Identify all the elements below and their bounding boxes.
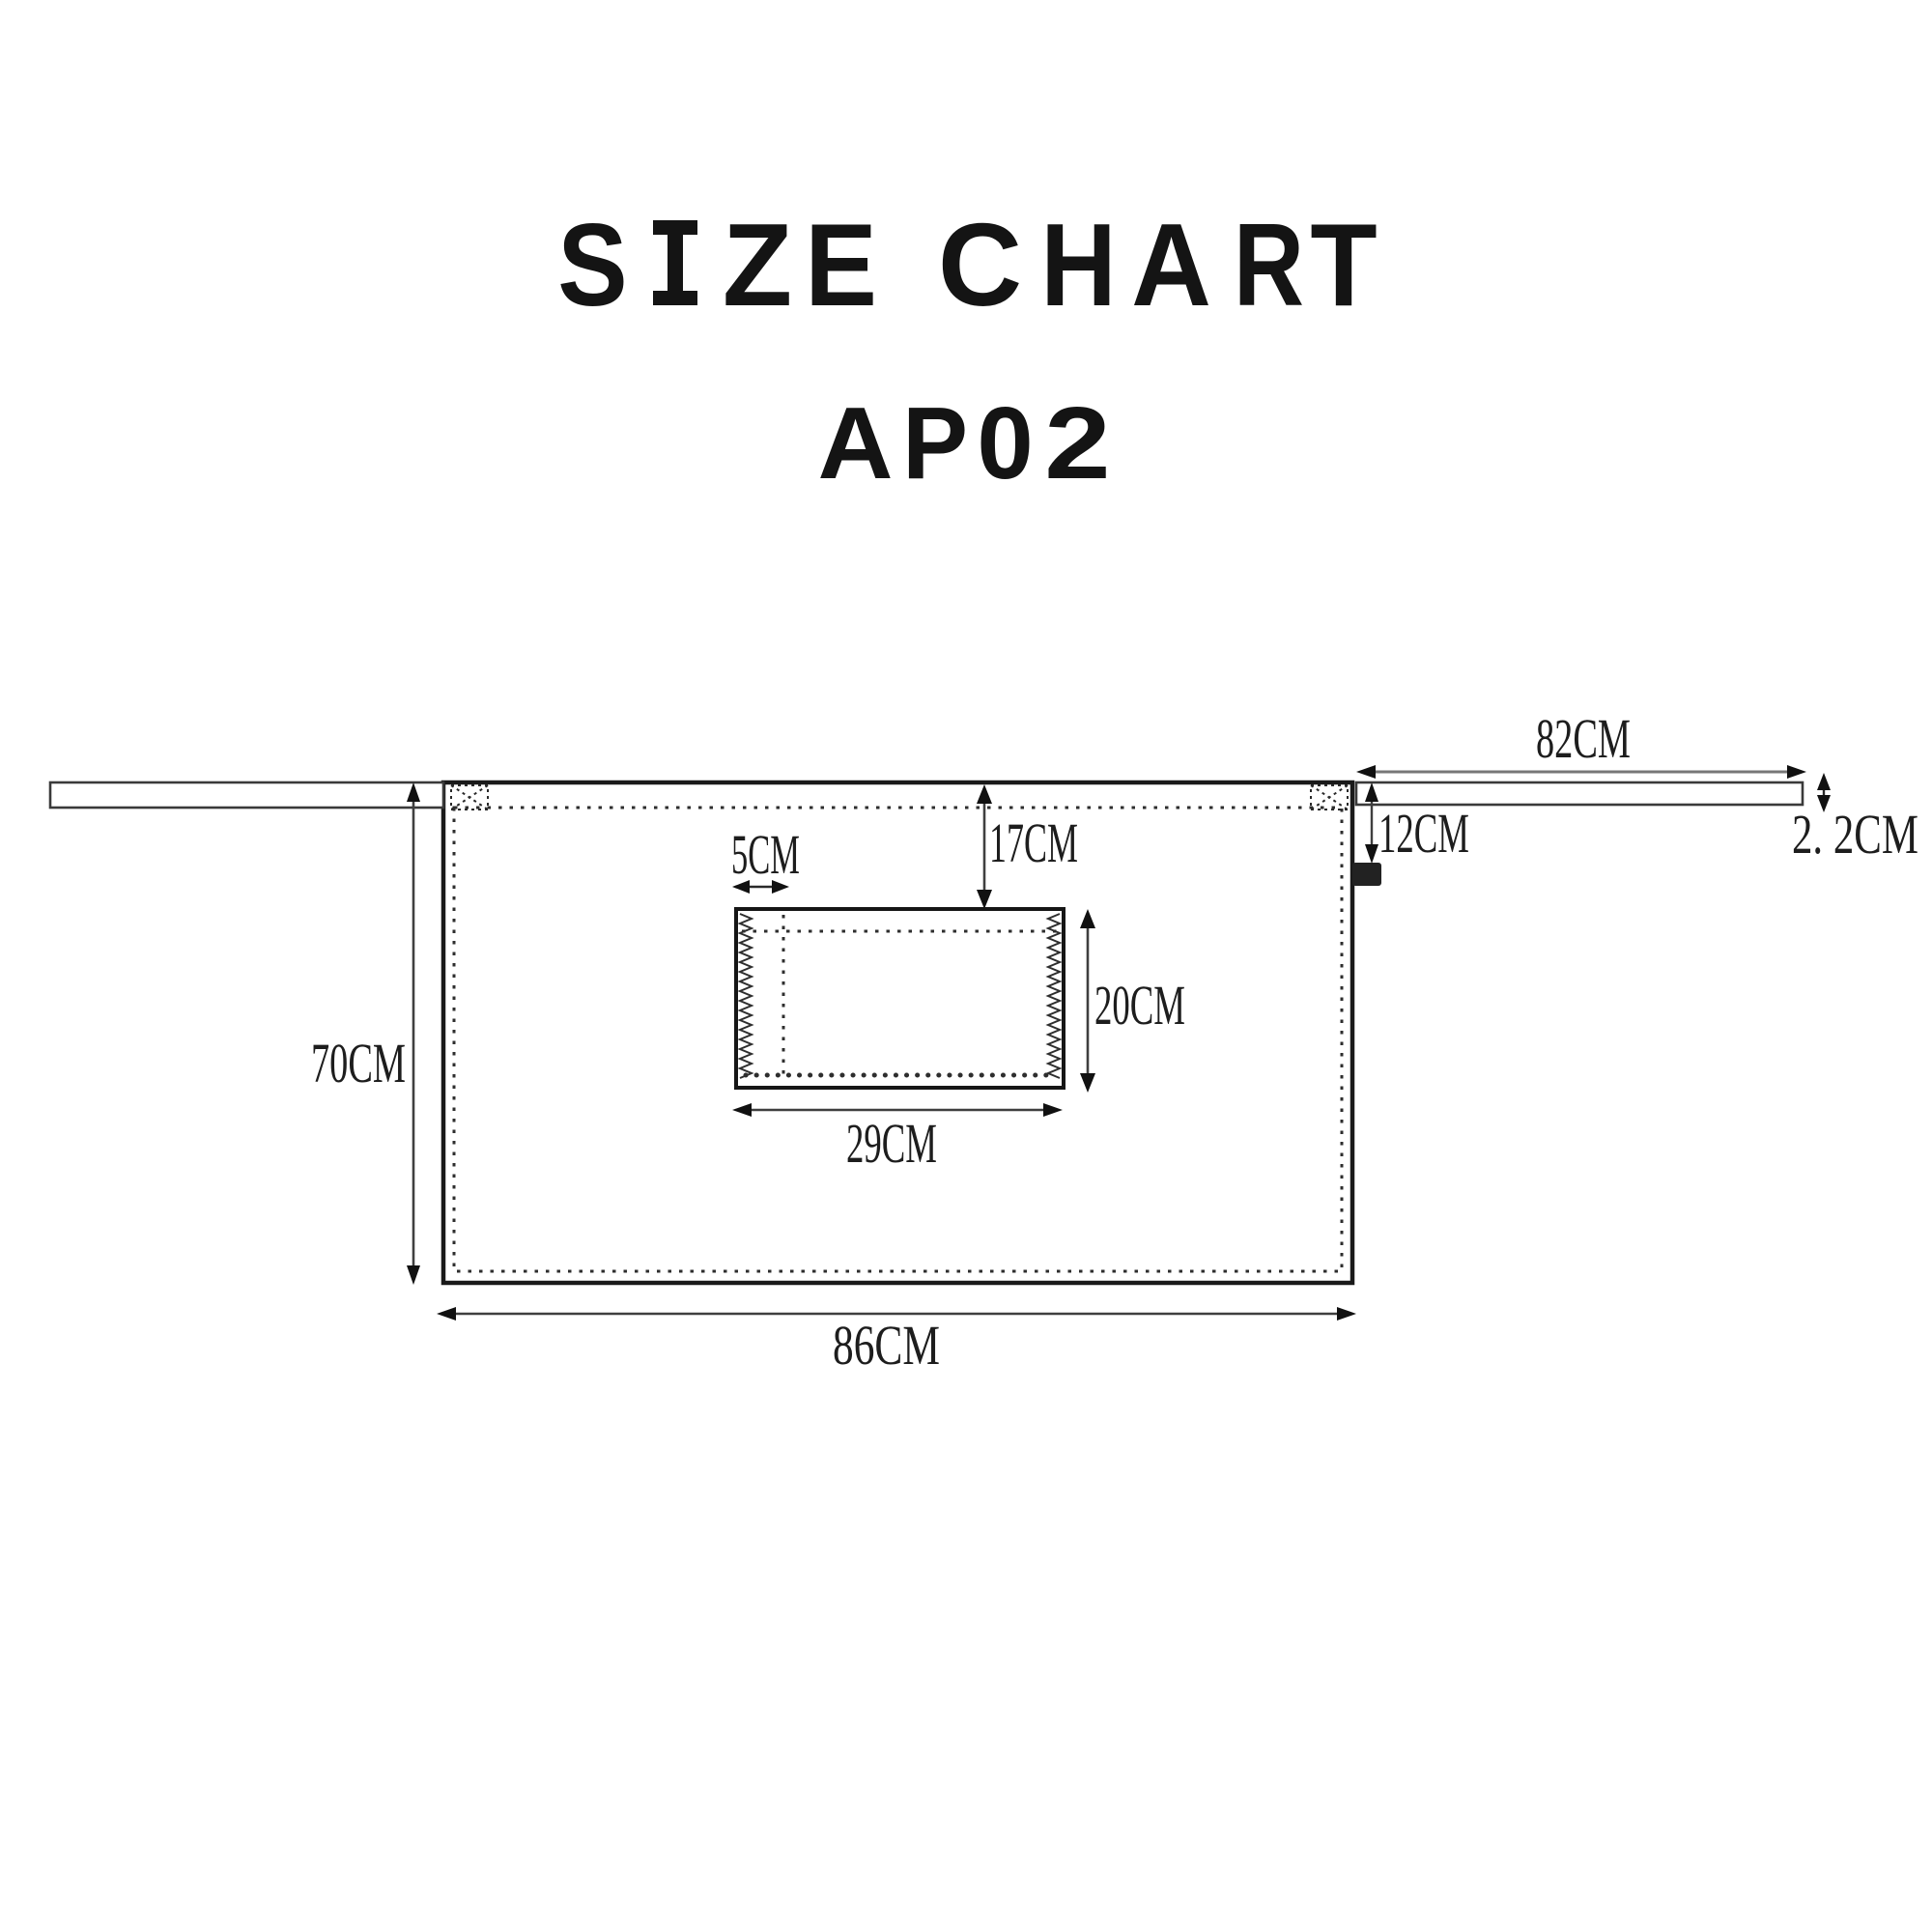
svg-text:T: T: [1310, 198, 1377, 330]
svg-text:H: H: [1040, 199, 1116, 330]
svg-text:82CM: 82CM: [1536, 707, 1631, 770]
svg-text:R: R: [1234, 199, 1304, 330]
svg-text:29CM: 29CM: [846, 1112, 937, 1175]
svg-text:P: P: [902, 386, 968, 500]
svg-text:5CM: 5CM: [731, 823, 800, 886]
svg-text:2. 2CM: 2. 2CM: [1792, 803, 1918, 866]
svg-text:0: 0: [977, 387, 1033, 501]
svg-text:C: C: [938, 198, 1022, 330]
svg-text:E: E: [805, 199, 877, 330]
svg-text:A: A: [817, 385, 893, 500]
svg-text:86CM: 86CM: [833, 1314, 940, 1377]
svg-text:S: S: [557, 199, 627, 330]
svg-text:70CM: 70CM: [311, 1032, 406, 1094]
svg-text:A: A: [1131, 200, 1211, 331]
svg-text:2: 2: [1044, 386, 1110, 500]
svg-text:12CM: 12CM: [1378, 802, 1469, 865]
svg-text:Z: Z: [723, 199, 792, 330]
svg-text:17CM: 17CM: [989, 811, 1078, 874]
svg-text:20CM: 20CM: [1094, 974, 1185, 1037]
